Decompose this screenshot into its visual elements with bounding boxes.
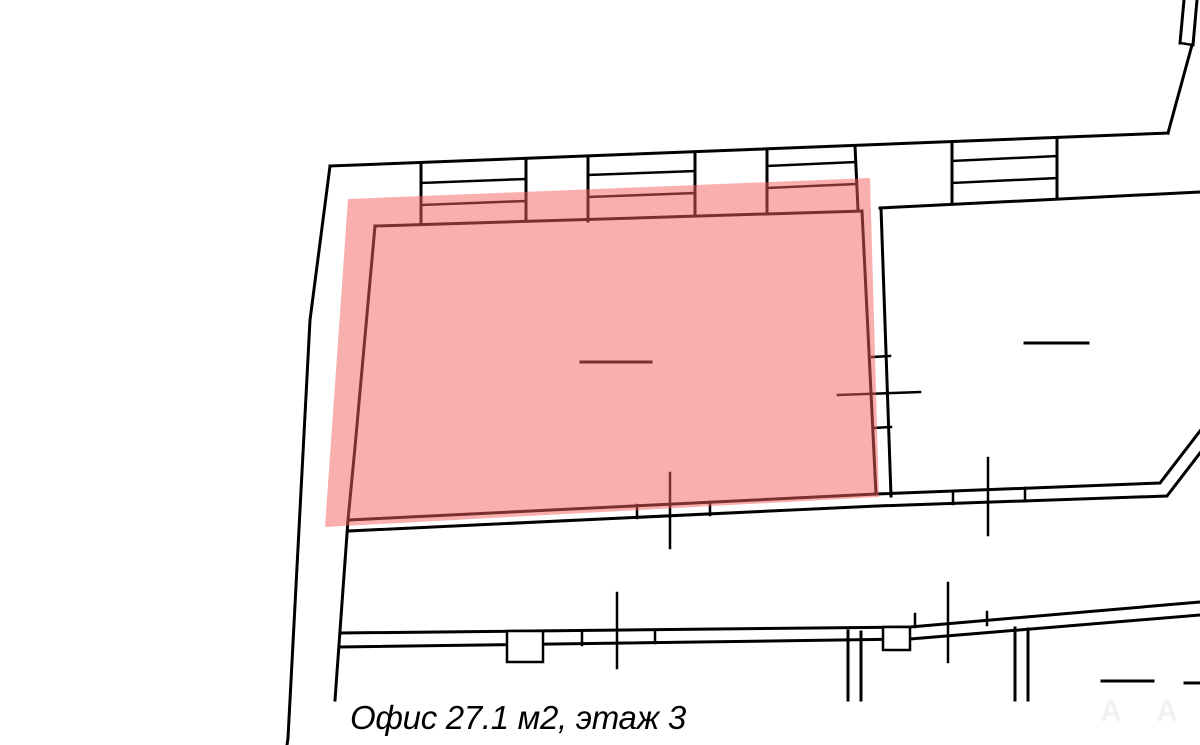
- plan-wall-line: [1193, 0, 1197, 45]
- pilaster: [883, 627, 910, 650]
- plan-wall-line: [952, 178, 1057, 183]
- plan-wall-line: [1180, 0, 1184, 43]
- plan-wall-line: [287, 166, 330, 745]
- plan-wall-line: [1168, 45, 1192, 133]
- plan-caption: Офис 27.1 м2, этаж 3: [350, 699, 686, 737]
- plan-wall-line: [588, 171, 695, 175]
- floor-plan-page: А А Офис 27.1 м2, этаж 3: [0, 0, 1200, 745]
- plan-wall-line: [767, 162, 855, 166]
- floor-plan-svg: [0, 0, 1200, 745]
- watermark-letter: А: [1100, 695, 1122, 729]
- selected-office-highlight[interactable]: [325, 178, 879, 527]
- plan-wall-line: [952, 156, 1057, 161]
- plan-wall-line: [330, 133, 1168, 166]
- pilaster: [507, 631, 543, 662]
- plan-wall-line: [881, 208, 891, 496]
- plan-wall-line: [340, 602, 1200, 633]
- plan-wall-line: [421, 179, 526, 183]
- watermark-letter: А: [1156, 695, 1178, 729]
- plan-wall-line: [880, 192, 1200, 208]
